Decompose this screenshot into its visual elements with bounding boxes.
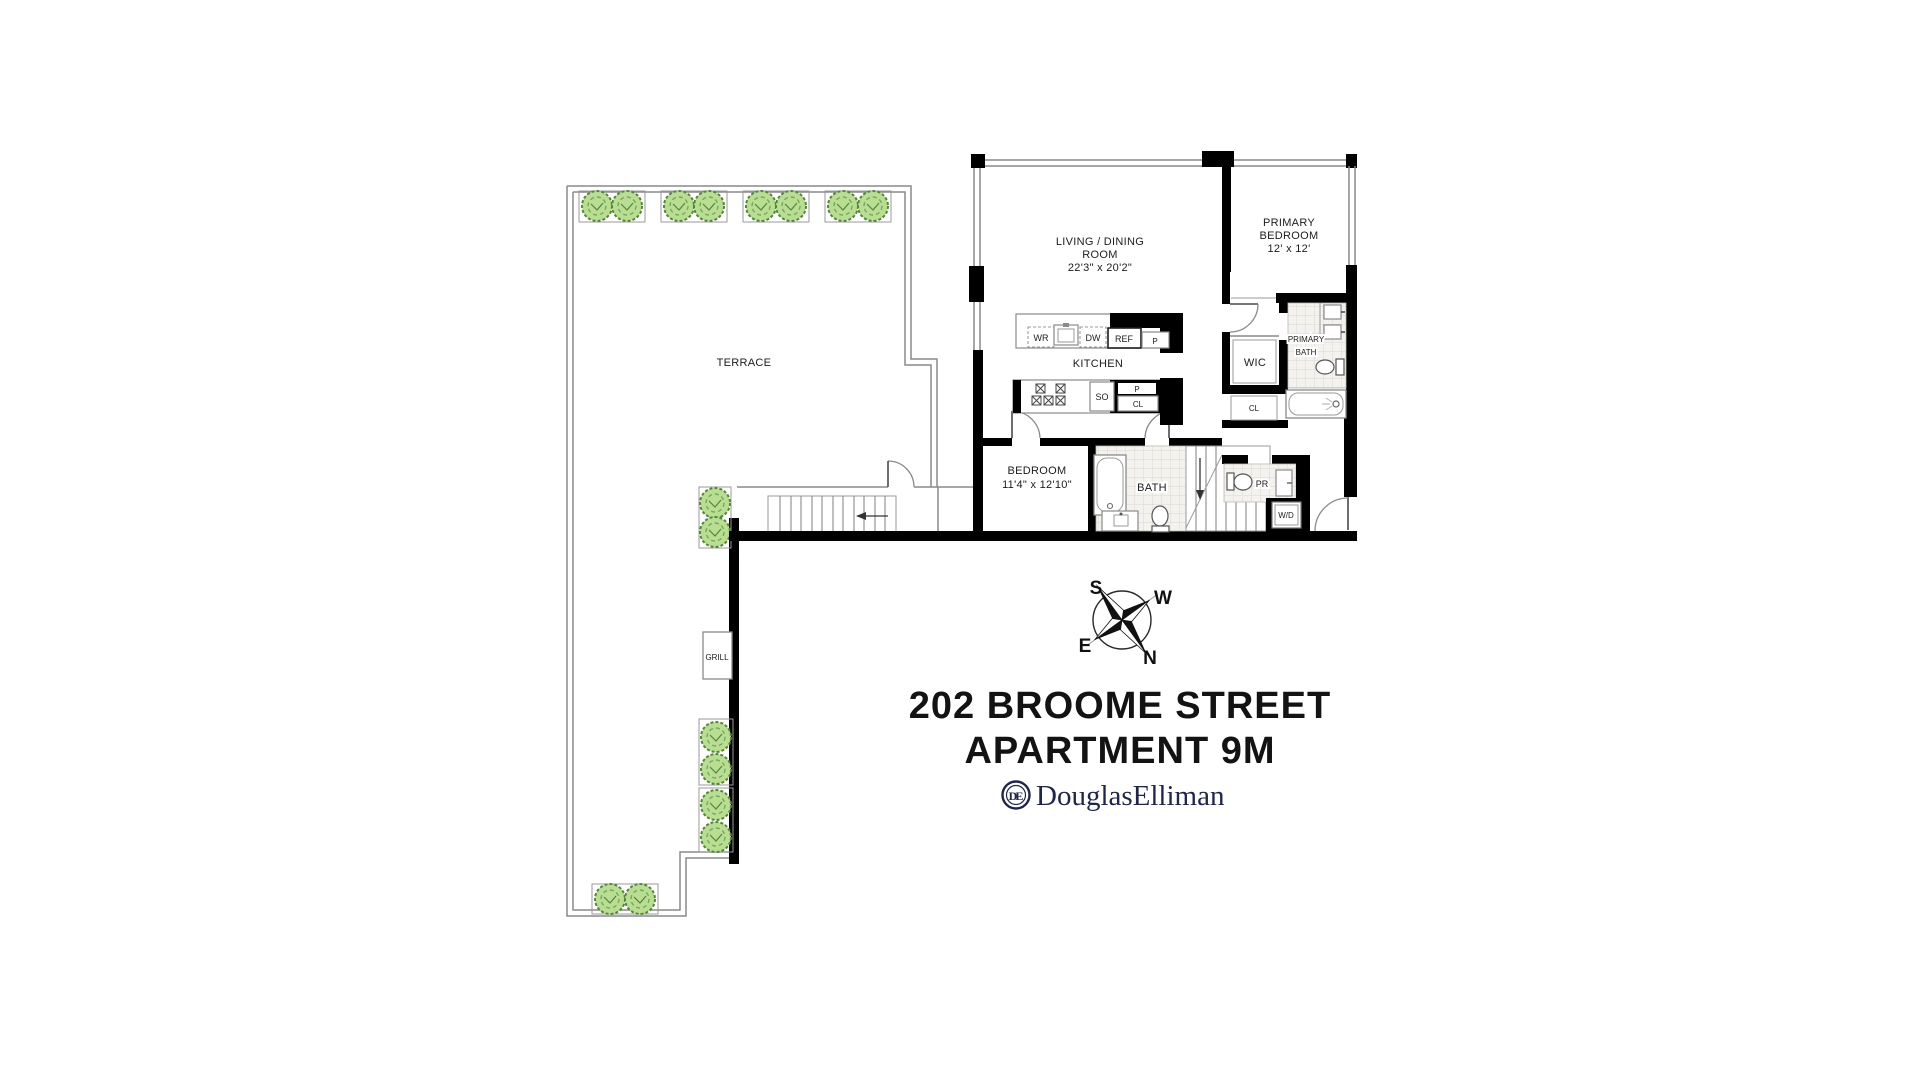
brand-logo: DE DouglasElliman xyxy=(1003,780,1225,812)
bathtub-icon xyxy=(1286,390,1346,418)
bedroom-label: BEDROOM xyxy=(1008,465,1067,477)
closet-kitchen-label: CL xyxy=(1133,400,1144,409)
closet-hall: CL xyxy=(1231,396,1277,420)
closet-hall-label: CL xyxy=(1249,404,1260,413)
plant-icon xyxy=(828,191,858,221)
compass-rose: S W E N xyxy=(1061,559,1184,682)
hall-door-arc xyxy=(1230,304,1258,332)
stacked-oven-label: SO xyxy=(1095,392,1108,402)
plant-icon xyxy=(582,191,612,221)
vanity-sink-icon xyxy=(1102,511,1138,531)
terrace-label: TERRACE xyxy=(717,357,772,369)
compass-w: W xyxy=(1154,588,1172,609)
plant-icon xyxy=(701,754,731,784)
plant-icon xyxy=(612,191,642,221)
plan-title: 202 BROOME STREET APARTMENT 9M xyxy=(909,685,1331,772)
plant-icon xyxy=(664,191,694,221)
bedroom-dims: 11'4" x 12'10" xyxy=(1002,479,1072,491)
plant-icon xyxy=(625,884,655,914)
primary-bath: PRIMARY BATH xyxy=(1286,303,1346,418)
pantry-upper-label: P xyxy=(1152,337,1157,346)
plant-icon xyxy=(701,790,731,820)
grill-label: GRILL xyxy=(705,653,729,662)
kitchen-sink-icon xyxy=(1054,323,1078,345)
bedroom-door-arc xyxy=(1012,411,1040,438)
pantry-lower-label: P xyxy=(1134,385,1139,394)
compass-e: E xyxy=(1079,636,1092,657)
plant-icon xyxy=(746,191,776,221)
pr-sink-icon xyxy=(1276,470,1292,496)
plant-icon xyxy=(858,191,888,221)
entry-door-arc xyxy=(1315,498,1348,531)
grill: GRILL xyxy=(703,632,732,679)
primary-bedroom-label-1: PRIMARY xyxy=(1263,217,1315,229)
primary-bath-label-1: PRIMARY xyxy=(1288,335,1325,344)
title-line-1: 202 BROOME STREET xyxy=(909,685,1331,727)
bath-sink-icon xyxy=(1324,325,1341,339)
planters-top-row xyxy=(579,191,891,222)
compass-n: N xyxy=(1143,648,1157,669)
bedroom-bath: BATH xyxy=(1094,446,1186,532)
planters-side xyxy=(592,487,733,914)
terrace: GRILL TERRACE xyxy=(567,186,976,916)
wic: WIC xyxy=(1230,336,1279,383)
logo-monogram-letters: DE xyxy=(1009,789,1024,803)
primary-bedroom-dims: 12' x 12' xyxy=(1268,243,1311,255)
terrace-stairs xyxy=(768,496,896,534)
bath-sink-icon xyxy=(1324,305,1341,319)
plant-icon xyxy=(595,884,625,914)
bathtub-icon xyxy=(1094,455,1126,515)
plant-icon xyxy=(701,822,731,852)
washer-dryer-label: W/D xyxy=(1278,511,1294,520)
plant-icon xyxy=(700,488,730,518)
plant-icon xyxy=(701,722,731,752)
plant-icon xyxy=(694,191,724,221)
refrigerator-label: REF xyxy=(1115,334,1134,344)
bath-label: BATH xyxy=(1137,482,1167,494)
living-room-label-1: LIVING / DINING xyxy=(1056,236,1144,248)
logo-wordmark: DouglasElliman xyxy=(1036,780,1225,812)
title-line-2: APARTMENT 9M xyxy=(964,730,1275,772)
wine-ref-label: WR xyxy=(1034,333,1049,343)
pr-label: PR xyxy=(1256,479,1269,489)
living-room-dims: 22'3" x 20'2" xyxy=(1068,262,1132,274)
dishwasher-label: DW xyxy=(1086,333,1101,343)
toilet-icon xyxy=(1316,359,1344,375)
kitchen: WR DW REF P KITCHEN SO P CL xyxy=(1013,313,1183,425)
toilet-icon xyxy=(1227,473,1252,490)
terrace-wall-vertical xyxy=(729,518,739,864)
kitchen-label: KITCHEN xyxy=(1073,358,1123,370)
living-room-label-2: ROOM xyxy=(1082,249,1117,261)
primary-bedroom-label-2: BEDROOM xyxy=(1260,230,1319,242)
floor-plan-page: GRILL TERRACE xyxy=(0,0,1920,1080)
wic-label: WIC xyxy=(1244,357,1266,369)
toilet-icon xyxy=(1152,506,1169,532)
terrace-door-arc xyxy=(888,461,914,487)
primary-bath-label-2: BATH xyxy=(1296,348,1317,357)
washer-dryer: W/D xyxy=(1266,498,1306,532)
compass-s: S xyxy=(1090,578,1103,599)
plant-icon xyxy=(776,191,806,221)
plant-icon xyxy=(700,517,730,547)
